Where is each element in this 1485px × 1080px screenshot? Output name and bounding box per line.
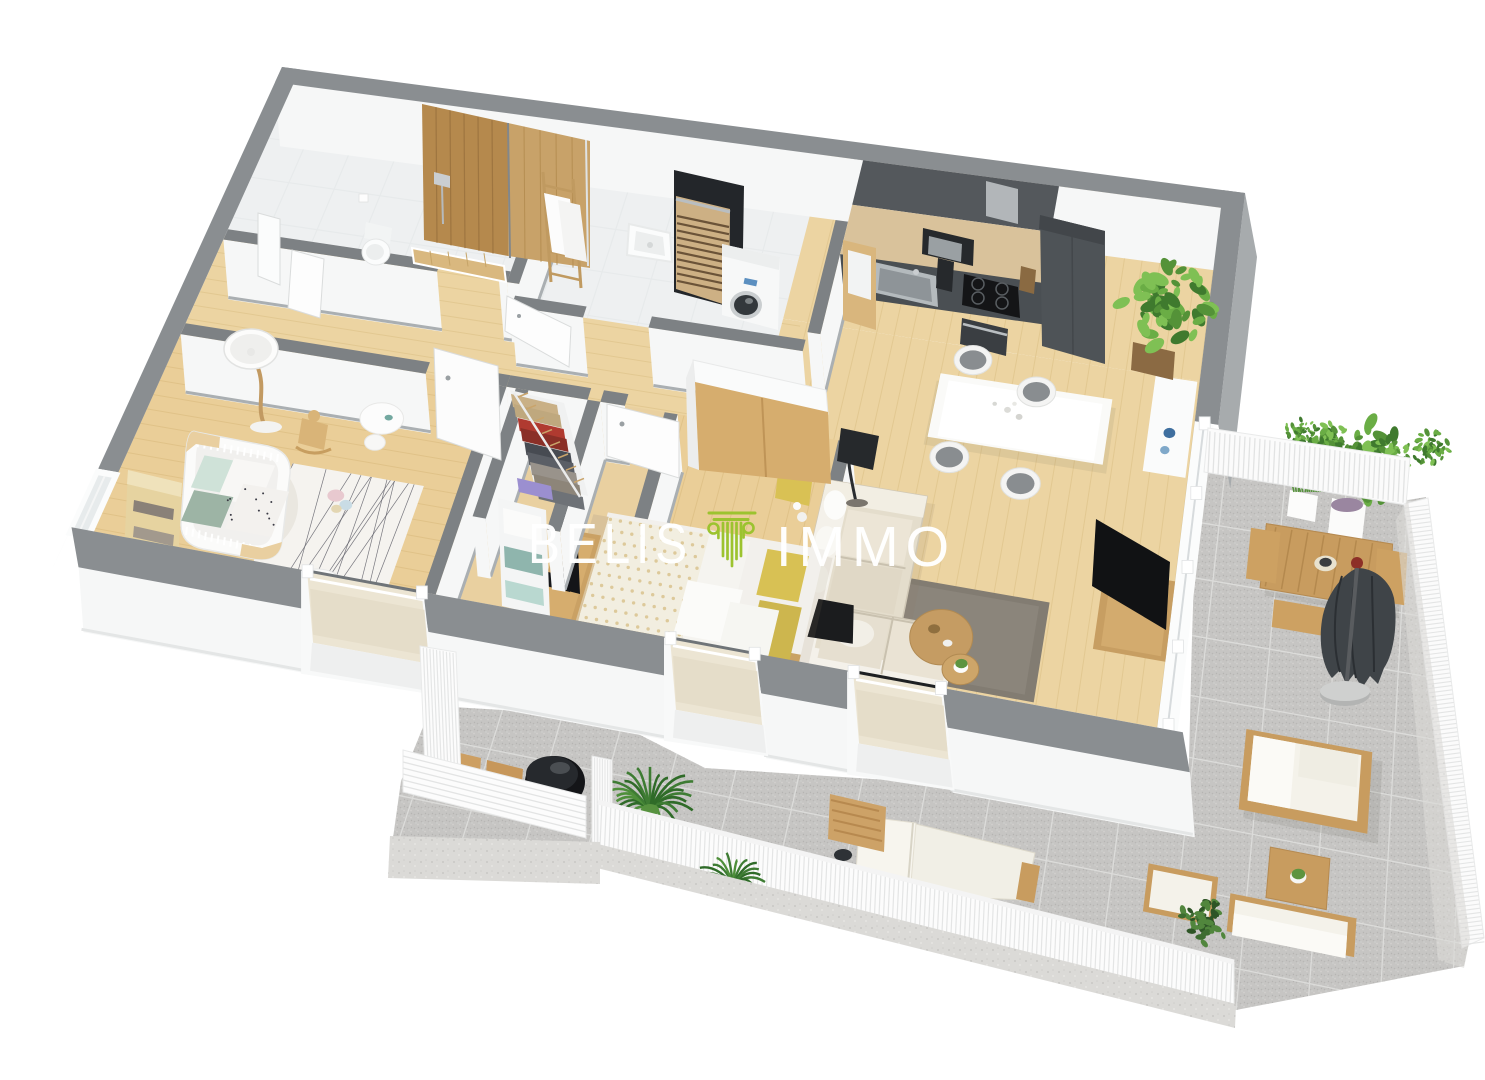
- svg-text:IMMO: IMMO: [776, 515, 956, 579]
- svg-text:BELIS: BELIS: [528, 512, 693, 576]
